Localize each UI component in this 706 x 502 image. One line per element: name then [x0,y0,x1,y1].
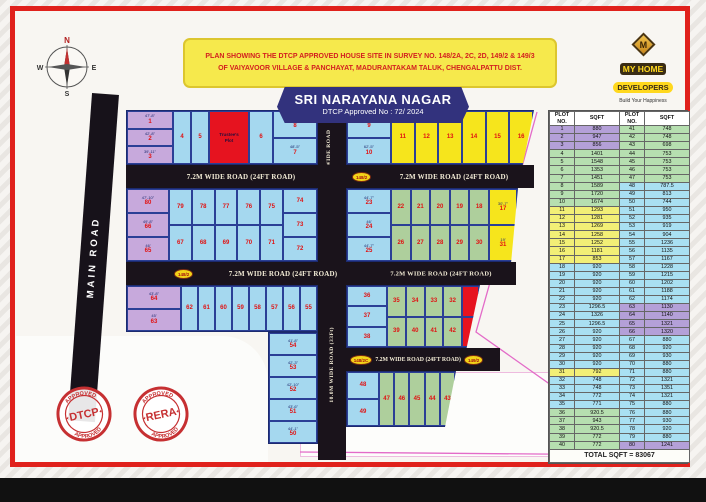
table-row: 18920581228 [550,263,690,271]
approval-number: DTCP Approved No : 72/ 2024 [277,107,469,117]
sqft-cell: 1293 [575,206,620,214]
plot-no-cell: 30 [550,360,575,368]
plot-no-cell: 50 [620,198,645,206]
sqft-cell: 1451 [575,174,620,182]
bottom-band [0,478,706,502]
plot-40: 40 [406,317,425,348]
road-72-middle-label-right: 7.2M WIDE ROAD (24FT ROAD) [366,270,516,277]
sqft-cell: 1296.5 [575,320,620,328]
sqft-cell: 1252 [575,239,620,247]
sqft-cell: 1720 [575,190,620,198]
plot-no-cell: 8 [550,182,575,190]
table-header-row: PLOT NO. SQFT PLOT NO. SQFT [550,112,690,126]
sqft-cell: 753 [645,158,690,166]
plot-46: 46 [394,372,409,426]
col-header: PLOT NO. [550,112,575,126]
sqft-cell: 880 [645,409,690,417]
sqft-cell: 1140 [645,312,690,320]
plot-45: 45 [409,372,424,426]
sqft-cell: 1167 [645,255,690,263]
plot-no-cell: 51 [620,206,645,214]
plot-no-cell: 18 [550,263,575,271]
plot-no-cell: 52 [620,215,645,223]
plot-no-cell: 1 [550,126,575,134]
plot-38: 38 [347,327,387,347]
sqft-cell: 920 [575,328,620,336]
plot-26: 26 [391,225,411,261]
table-row: 17853571167 [550,255,690,263]
plot-10: 62'-5"10 [347,138,391,165]
table-row: 40772801241 [550,441,690,449]
plot-no-cell: 5 [550,158,575,166]
sqft-cell: 1188 [645,287,690,295]
sqft-cell: 1228 [645,263,690,271]
sqft-cell: 1281 [575,215,620,223]
plot-50: 44'-1"50 [269,421,317,443]
plot-51: 43'-6"51 [269,399,317,421]
table-row: 5154845753 [550,158,690,166]
road-72-upper-label-left: 7.2M WIDE ROAD (24FT ROAD) [151,173,331,181]
sqft-cell: 1351 [645,385,690,393]
plan-note: PLAN SHOWING THE DTCP APPROVED HOUSE SIT… [183,38,557,88]
sqft-cell: 853 [575,255,620,263]
plot-18: 18 [469,189,489,225]
plot-72: 72 [283,237,317,261]
table-row: 12128152935 [550,215,690,223]
plot-no-cell: 37 [550,417,575,425]
table-row: 26920661320 [550,328,690,336]
plot-1: 47'-8"1 [127,111,173,129]
plot-no-cell: 67 [620,336,645,344]
plot-59: 59 [232,286,249,331]
sqft-cell: 1296.5 [575,304,620,312]
road-10m: 10.0M WIDE ROAD (33Ft) 10.0M WIDE ROAD (… [318,110,346,460]
plot-no-cell: 10 [550,198,575,206]
plot-no-cell: 7 [550,174,575,182]
plot-29: 29 [450,225,470,261]
sqft-cell: 950 [645,206,690,214]
table-row: 241326641140 [550,312,690,320]
col-header: SQFT [575,112,620,126]
plot-34: 34 [406,286,425,317]
plot-no-cell: 58 [620,263,645,271]
plot-no-cell: 2 [550,134,575,142]
plot-no-cell: 74 [620,393,645,401]
plot-no-cell: 16 [550,247,575,255]
compass-n: N [64,36,70,45]
plot-no-cell: 9 [550,190,575,198]
total-row: TOTAL SQFT = 83067 [550,450,690,463]
sqft-cell: 935 [645,215,690,223]
plot-no-cell: 32 [550,376,575,384]
plot-no-cell: 22 [550,295,575,303]
sqft-cell: 904 [645,231,690,239]
plot-no-cell: 71 [620,368,645,376]
plot-68: 68 [192,225,215,261]
plot-42: 42 [443,317,462,348]
plot-no-cell: 56 [620,247,645,255]
plot-33: 33 [425,286,444,317]
sqft-cell: 920 [575,287,620,295]
sqft-cell: 880 [645,368,690,376]
compass-s: S [65,91,70,96]
plot-32: 32 [443,286,462,317]
plot-44: 44 [425,372,440,426]
sqft-cell: 787.5 [645,182,690,190]
sqft-cell: 748 [645,134,690,142]
sqft-cell: 920 [645,425,690,433]
plot-54: 41'-8"54 [269,333,317,355]
sqft-cell: 880 [575,126,620,134]
block-c: 47'-10"8049'-8"6646'65 7978777675 676869… [126,188,318,262]
plot-69: 69 [215,225,238,261]
plot-no-cell: 21 [550,287,575,295]
plot-no-cell: 35 [550,401,575,409]
plot-61: 61 [198,286,215,331]
sqft-cell: 1269 [575,223,620,231]
table-row: 10167450744 [550,198,690,206]
plot-no-cell: 43 [620,142,645,150]
trustee-plot: Trustee'sPlot [209,111,249,164]
plot-74: 74 [283,189,317,213]
plot-19: 19 [450,189,470,225]
sqft-cell: 1320 [645,328,690,336]
plot-no-cell: 80 [620,441,645,449]
road-72-lower-label: 7.2M WIDE ROAD (24FT ROAD) [375,357,461,363]
sqft-cell: 772 [575,441,620,449]
table-row: 34772741321 [550,393,690,401]
sqft-cell: 1548 [575,158,620,166]
sqft-cell: 1202 [645,279,690,287]
table-row: 9172049813 [550,190,690,198]
sqft-cell: 1321 [645,393,690,401]
block-f: 4849 4746454443 [346,371,456,427]
plot-30: 30 [469,225,489,261]
plot-no-cell: 76 [620,409,645,417]
plot-no-cell: 6 [550,166,575,174]
plot-no-cell: 27 [550,336,575,344]
sqft-cell: 1321 [645,320,690,328]
road-72-upper: 7.2M WIDE ROAD (24FT ROAD) 148/2 7.2M WI… [126,165,534,188]
plot-70: 70 [237,225,260,261]
plan-note-line2: OF VAIYAVOOR VILLAGE & PANCHAYAT, MADURA… [191,63,549,75]
table-row: 6135346753 [550,166,690,174]
col-header: PLOT NO. [620,112,645,126]
sqft-cell: 1353 [575,166,620,174]
sqft-cell: 748 [575,376,620,384]
plot-no-cell: 24 [550,312,575,320]
sqft-cell: 920 [575,263,620,271]
table-row: 21920611188 [550,287,690,295]
plot-no-cell: 65 [620,320,645,328]
plot-no-cell: 57 [620,255,645,263]
plot-6: 6 [249,111,273,164]
plot-79: 79 [169,189,192,225]
plot-no-cell: 66 [620,328,645,336]
plot-no-cell: 48 [620,182,645,190]
sqft-cell: 943 [575,417,620,425]
plot-no-cell: 38 [550,425,575,433]
plot-no-cell: 42 [620,134,645,142]
plot-no-cell: 19 [550,271,575,279]
table-row: 231296.5631130 [550,304,690,312]
plot-no-cell: 23 [550,304,575,312]
plot-53: 42'-3"53 [269,355,317,377]
site-plan: N E S W PLAN SHOWING THE DTCP APPROVED H… [0,0,706,502]
sqft-cell: 920 [575,360,620,368]
sqft-cell: 1130 [645,304,690,312]
plot-55: 55 [300,286,317,331]
plot-65: 46'65 [127,237,169,261]
plot-52: 42'-10"52 [269,377,317,399]
plot-35: 35 [387,286,406,317]
plot-no-cell: 3 [550,142,575,150]
plot-64: 43'-8"64 [127,286,181,309]
sqft-cell: 772 [575,393,620,401]
table-row: 33748731351 [550,385,690,393]
plot-no-cell: 78 [620,425,645,433]
sqft-cell: 920 [575,336,620,344]
plot-no-cell: 54 [620,231,645,239]
table-row: 32748721321 [550,376,690,384]
sqft-cell: 930 [645,417,690,425]
road-72-lower: 148/2C 7.2M WIDE ROAD (24FT ROAD) 149/2 [333,348,500,371]
plot-no-cell: 45 [620,158,645,166]
sqft-cell: 1326 [575,312,620,320]
sqft-cell: 1241 [645,441,690,449]
rera-stamp: APPROVED APPROVED RERA ★★ [127,380,196,449]
sqft-cell: 813 [645,190,690,198]
plot-no-cell: 47 [620,174,645,182]
plot-no-cell: 64 [620,312,645,320]
plot-7: 48'-5"7 [273,138,317,165]
compass-w: W [37,65,44,72]
plot-no-cell: 62 [620,295,645,303]
table-row: 38920.578920 [550,425,690,433]
plot-57: 57 [266,286,283,331]
table-row: 188041748 [550,126,690,134]
col-header: SQFT [645,112,690,126]
plot-75: 75 [260,189,283,225]
plot-27: 27 [411,225,431,261]
sqft-cell: 880 [645,401,690,409]
plot-60: 60 [215,286,232,331]
table-row: 161181561135 [550,247,690,255]
plot-63: 45'63 [127,309,181,332]
plot-no-cell: 11 [550,206,575,214]
plot-5: 5 [191,111,209,164]
sqft-cell: 1181 [575,247,620,255]
plot-20: 20 [430,189,450,225]
compass-e: E [92,65,97,72]
plot-37: 37 [347,306,387,326]
sqft-cell: 748 [575,385,620,393]
plot-no-cell: 73 [620,385,645,393]
plot-no-cell: 77 [620,417,645,425]
plot-no-cell: 72 [620,376,645,384]
table-row: 7145147753 [550,174,690,182]
sqft-cell: 744 [645,198,690,206]
plot-no-cell: 61 [620,287,645,295]
sqft-cell: 1258 [575,231,620,239]
sqft-cell: 1215 [645,271,690,279]
sqft-cell: 920 [575,271,620,279]
plot-36: 36 [347,286,387,306]
sqft-cell: 919 [645,223,690,231]
sqft-cell: 1589 [575,182,620,190]
sqft-cell: 880 [645,433,690,441]
plot-2: 42'-8"2 [127,129,173,147]
plot-73: 73 [283,213,317,237]
plot-39: 39 [387,317,406,348]
plot-no-cell: 20 [550,279,575,287]
block-e-column: 41'-8"5442'-3"5342'-10"5243'-6"5144'-1"5… [268,332,318,444]
plot-80: 47'-10"80 [127,189,169,213]
plot-no-cell: 60 [620,279,645,287]
table-row: 19920591215 [550,271,690,279]
plot-3: 39'-11"3 [127,146,173,164]
sqft-cell: 920.5 [575,409,620,417]
plot-15: 15 [486,111,510,164]
plot-17: 30'-7"17 [489,189,517,225]
page-title: SRI NARAYANA NAGAR [277,93,469,107]
sqft-cell: 947 [575,134,620,142]
plot-14: 14 [462,111,486,164]
plot-no-cell: 75 [620,401,645,409]
plot-no-cell: 68 [620,344,645,352]
plot-no-cell: 26 [550,328,575,336]
sqft-cell: 792 [575,368,620,376]
sqft-cell: 920 [575,344,620,352]
plot-no-cell: 41 [620,126,645,134]
plot-no-cell: 34 [550,393,575,401]
sqft-cell: 880 [645,336,690,344]
plot-no-cell: 29 [550,352,575,360]
plot-48: 48 [347,372,379,399]
plot-no-cell: 12 [550,215,575,223]
road-72-upper-label-right: 7.2M WIDE ROAD (24FT ROAD) [384,173,524,181]
road-72-middle-label-left: 7.2M WIDE ROAD (24FT ROAD) [198,270,368,278]
table-row: 2892068920 [550,344,690,352]
sqft-cell: 753 [645,150,690,158]
plot-66: 49'-8"66 [127,213,169,237]
table-row: 20920601202 [550,279,690,287]
sqft-cell: 698 [645,142,690,150]
sqft-cell: 1401 [575,150,620,158]
sqft-cell: 1236 [645,239,690,247]
table-row: 3092070880 [550,360,690,368]
compass-icon: N E S W [36,34,98,96]
block-d: 44'-7"2346'2444'-7"25 2221201918 2627282… [346,188,518,262]
table-row: 3179271880 [550,368,690,376]
plot-no-cell: 14 [550,231,575,239]
logo-name2: DEVELOPERS [613,82,672,93]
sqft-cell: 1174 [645,295,690,303]
survey-oval: 148/2 [352,172,371,182]
plot-no-cell: 79 [620,433,645,441]
table-row: 4140144753 [550,150,690,158]
table-row: 385643698 [550,142,690,150]
plot-58: 58 [249,286,266,331]
plot-no-cell: 17 [550,255,575,263]
plot-62: 62 [181,286,198,331]
plot-47: 47 [379,372,394,426]
plot-no-cell: 55 [620,239,645,247]
table-row: 3577175880 [550,401,690,409]
table-row: 3794377930 [550,417,690,425]
plot-67: 67 [169,225,192,261]
plot-no-cell: 15 [550,239,575,247]
dtcp-stamp: APPROVED APPROVED DTCP ★★ [50,380,119,449]
block-g: 363738 35343332 39404142 [346,285,480,348]
plot-21: 21 [411,189,431,225]
plot-22: 22 [391,189,411,225]
plot-no-cell: 69 [620,352,645,360]
sqft-cell: 748 [645,126,690,134]
logo-name1: MY HOME [620,63,666,75]
plot-no-cell: 25 [550,320,575,328]
table-row: 8158948787.5 [550,182,690,190]
table-row: 2792067880 [550,336,690,344]
table-row: 294742748 [550,134,690,142]
plot-no-cell: 63 [620,304,645,312]
table-row: 13126953919 [550,223,690,231]
main-road-label: MAIN ROAD [85,216,102,298]
developer-logo: M MY HOME DEVELOPERS Build Your Happines… [600,34,686,104]
plot-49: 49 [347,399,379,426]
logo-tagline: Build Your Happiness [600,98,686,104]
plot-no-cell: 44 [620,150,645,158]
sqft-cell: 753 [645,174,690,182]
plot-41: 41 [425,317,444,348]
plot-area-table: PLOT NO. SQFT PLOT NO. SQFT 188041748294… [548,110,688,464]
survey-oval: 148/2 [174,269,193,279]
survey-oval: 149/2 [464,355,483,365]
sqft-cell: 920 [575,295,620,303]
plot-4: 4 [173,111,191,164]
plan-note-line1: PLAN SHOWING THE DTCP APPROVED HOUSE SIT… [191,51,549,63]
plot-no-cell: 53 [620,223,645,231]
plot-no-cell: 59 [620,271,645,279]
sqft-cell: 1674 [575,198,620,206]
sqft-cell: 772 [575,433,620,441]
plot-23: 44'-7"23 [347,189,391,213]
plot-25: 44'-7"25 [347,237,391,261]
table-row: 251296.5651321 [550,320,690,328]
sqft-cell: 920 [645,344,690,352]
plot-no-cell: 28 [550,344,575,352]
table-row: 151252551236 [550,239,690,247]
logo-mark-icon: M [631,32,655,56]
sqft-cell: 920 [575,279,620,287]
plot-no-cell: 40 [550,441,575,449]
plot-no-cell: 39 [550,433,575,441]
plot-no-cell: 31 [550,368,575,376]
plot-no-cell: 13 [550,223,575,231]
sqft-cell: 771 [575,401,620,409]
plot-28: 28 [430,225,450,261]
sqft-cell: 753 [645,166,690,174]
sqft-cell: 856 [575,142,620,150]
plot-24: 46'24 [347,213,391,237]
survey-oval: 148/2C [350,355,373,365]
sqft-cell: 1321 [645,376,690,384]
plot-no-cell: 70 [620,360,645,368]
plot-78: 78 [192,189,215,225]
plot-no-cell: 36 [550,409,575,417]
sqft-cell: 920 [575,352,620,360]
sqft-cell: 930 [645,352,690,360]
